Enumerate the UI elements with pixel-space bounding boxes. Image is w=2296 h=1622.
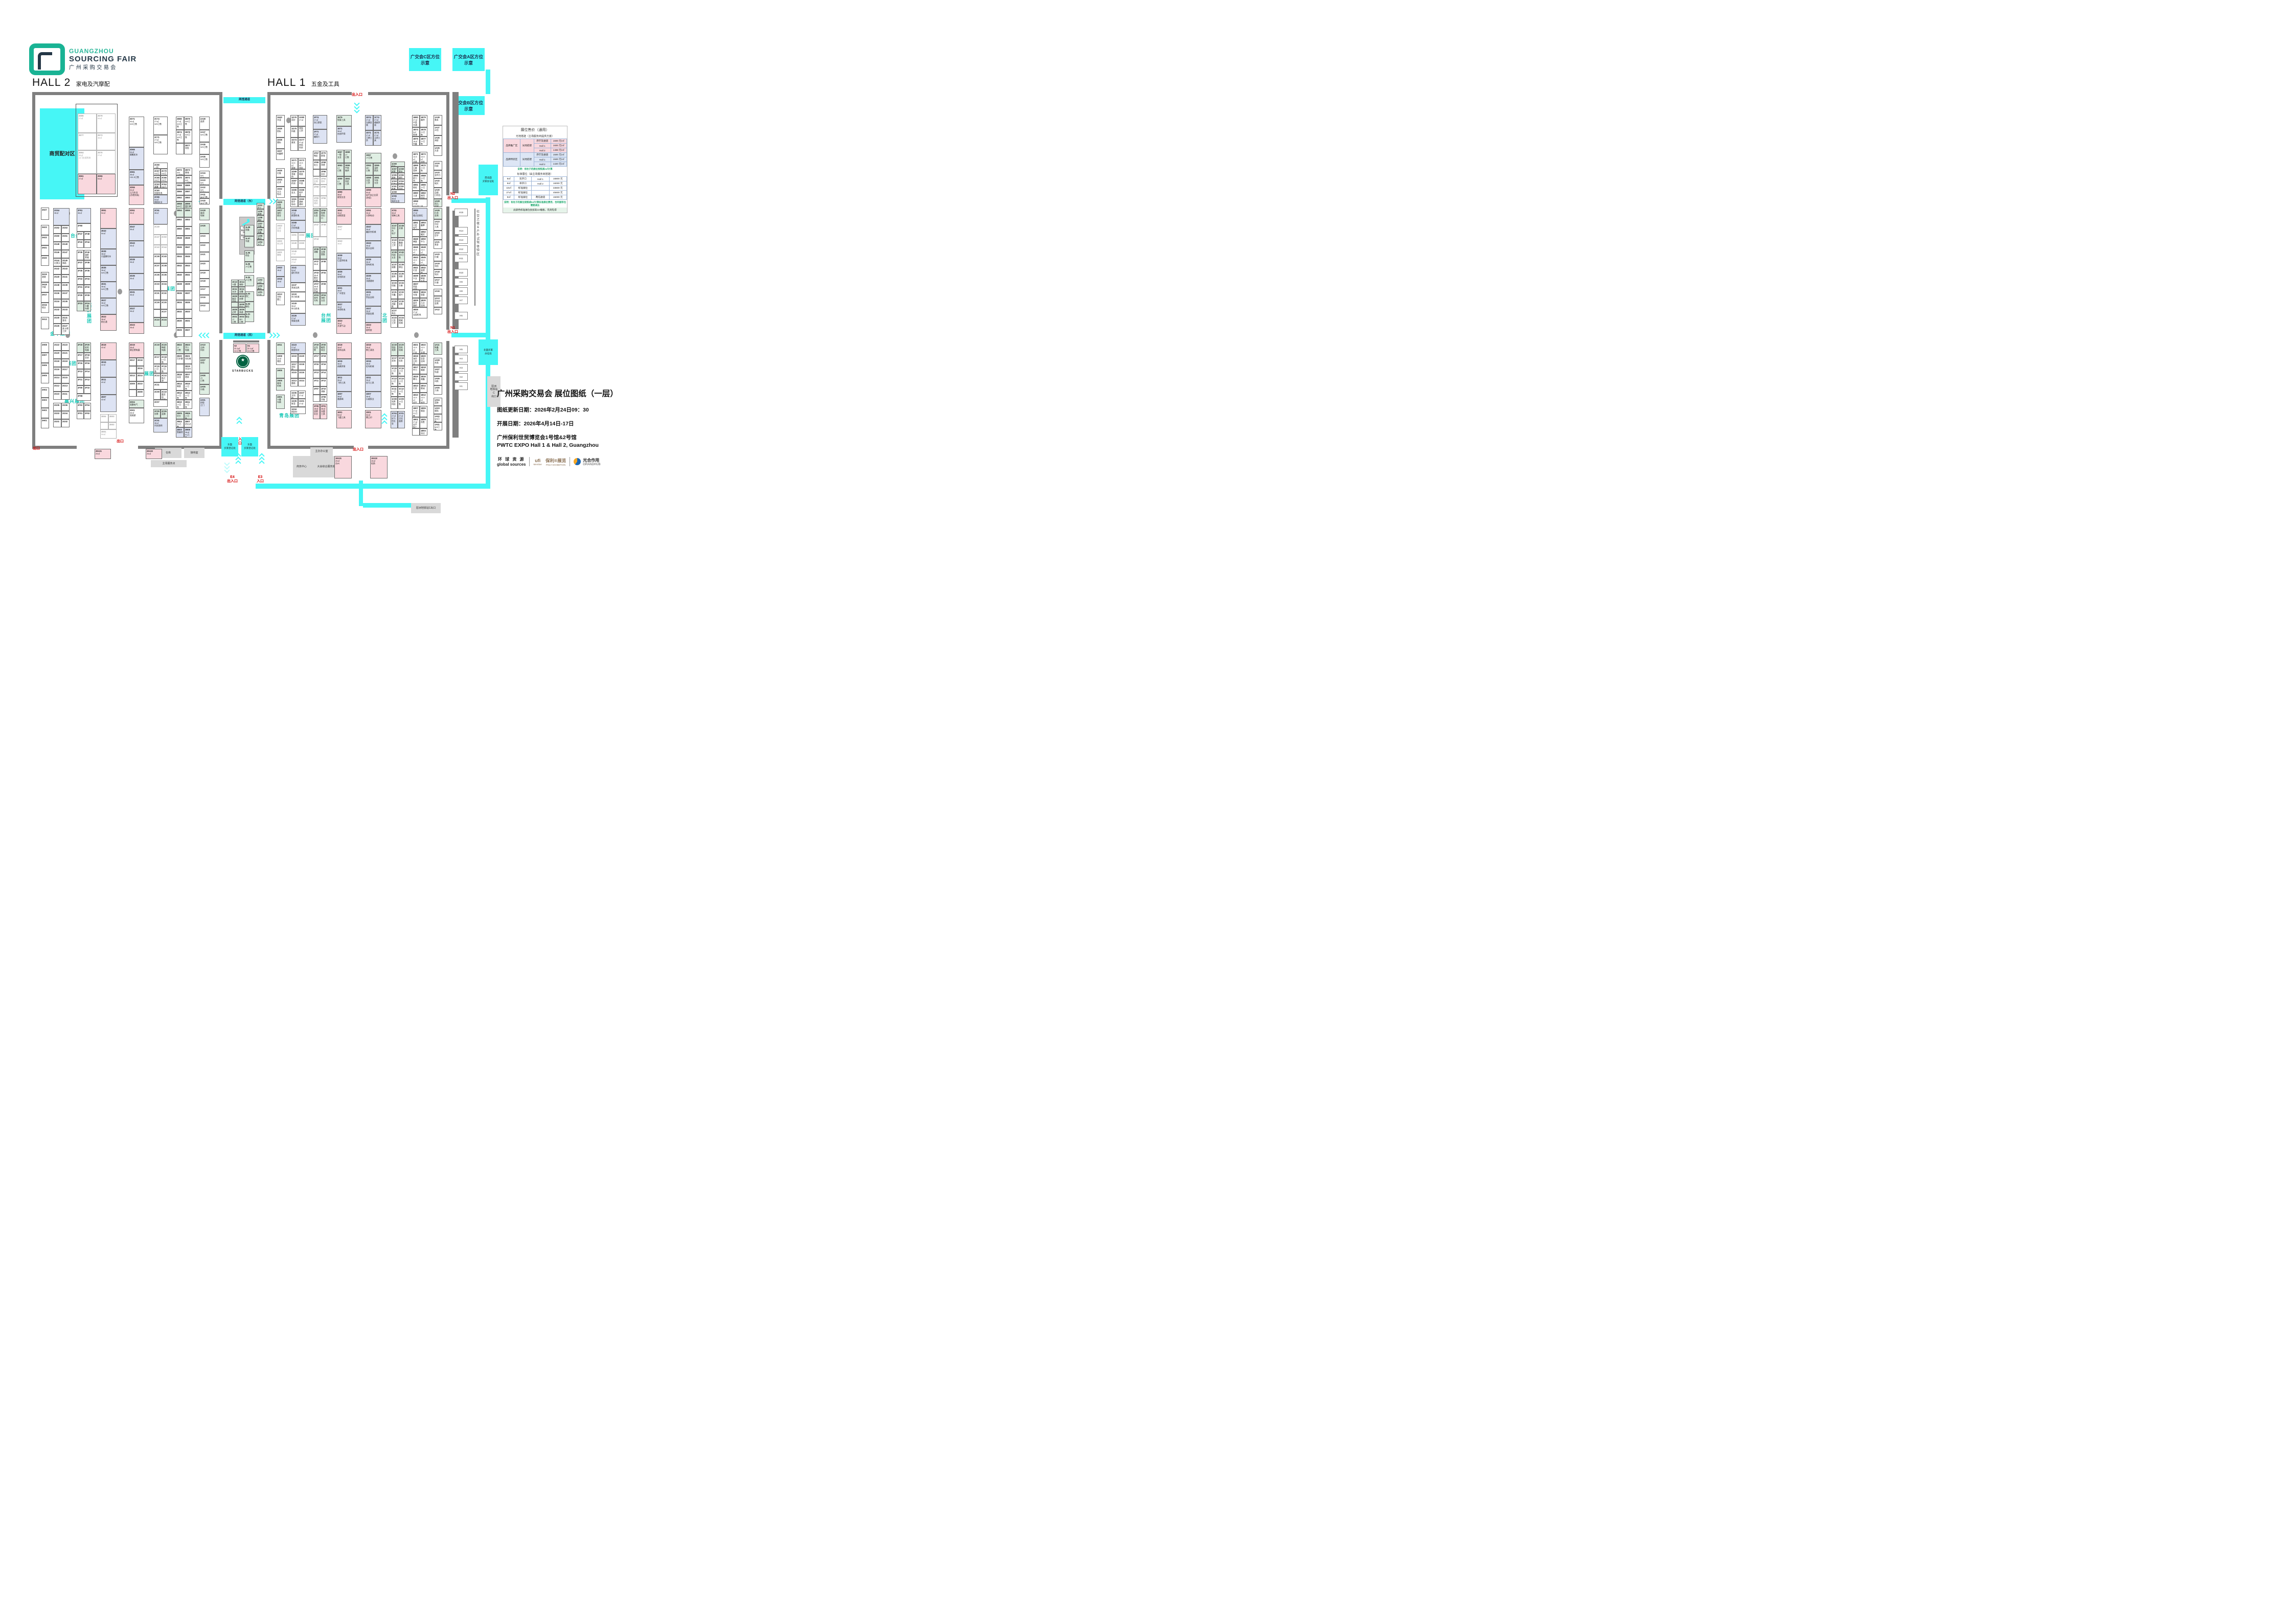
booth-2B17: 2B17 德林: [184, 372, 192, 381]
booth-2B70: 2B70: [176, 175, 184, 183]
booth-2A21: 2A21: [199, 252, 210, 261]
booth-1B26: 1B26 27㎡ 宝辰机电: [412, 307, 427, 318]
booth-2F44: 2F44: [84, 240, 91, 248]
booth-2E73: 2E73 36㎡: [97, 133, 116, 150]
booth-1F51: 1F51 意胜 五金: [313, 208, 320, 222]
booth-2A12: 2A12: [199, 303, 210, 311]
room-H13: H13: [454, 236, 468, 244]
booth-1F37: 1F37 36㎡: [313, 259, 320, 270]
wall: [32, 92, 222, 95]
booth-1B39: 1B39 兴业: [412, 273, 420, 282]
room-H2: H2: [454, 373, 468, 381]
booth-1A11: 1A11 致鑫 工具: [434, 342, 442, 355]
booth-2B37: 2B37: [184, 291, 192, 300]
booth-1A08: 1A08 合高: [434, 358, 442, 367]
booth-2C01: 2C01 36㎡ 环跃照明: [153, 418, 168, 432]
booth-1B60: 1B60 立波: [412, 191, 420, 199]
booth-2A33: 2A33 WX 已预定: [199, 178, 210, 185]
booth-1G04: 1G04 斯耐尔: [290, 407, 306, 414]
venue-cn: 广州保利世贸博览会1号馆&2号馆: [497, 433, 712, 441]
booth-2A34: 2A34 WX 已预定: [199, 171, 210, 178]
booth-2N101: 2N101 25㎡: [95, 449, 111, 459]
booth-blank: [176, 364, 184, 372]
booth-2A35: 2A35 WX已售: [199, 154, 210, 168]
booth-2B04: 2B04 PL已售: [176, 419, 184, 427]
entrance-label: 出入口: [352, 93, 362, 97]
booth-1D65: 1D65 温岭 欧凯: [373, 163, 381, 175]
booth-2G48: 2G48: [53, 242, 61, 250]
booth-1G51: 1G51: [290, 233, 298, 241]
booth-2G23: 2G23: [61, 342, 70, 351]
booth-1H35: 1H35 红磊: [276, 168, 285, 177]
booth-2A17: 2A17: [199, 287, 210, 295]
booth-2F15: 2F15: [77, 361, 84, 369]
booth-1J05: 1J05 鑫同宁: [257, 234, 264, 240]
room-H12: H12: [454, 245, 468, 253]
booth-1G50: 1G50: [298, 241, 306, 249]
booth-2G40: 2G40: [53, 275, 61, 283]
booth-2F01: 2F01: [77, 411, 84, 419]
booth-1C68: 1C68 赛夫 五金: [398, 167, 405, 173]
booth-1F33: 1F33 36㎡ 蒙花机械: [313, 270, 320, 282]
booth-1B07: 1B07 27㎡ PL已售: [412, 406, 420, 417]
booth-2A10: 2A10 吉纳 科技: [199, 342, 210, 358]
booth-2C11: 2C11: [153, 382, 168, 390]
booth-1B22: 1B22 13.5㎡ 关通: [420, 342, 427, 354]
booth-1K09: 1K09 融羿 贸易: [231, 294, 238, 302]
booth-1F44: 1F44: [313, 237, 327, 247]
booth-2G31: 2G31 爱诺: [61, 315, 70, 324]
booth-2D23: 2D23 36㎡: [129, 323, 144, 334]
booth-1A18: 1A18 铭沃: [434, 269, 442, 278]
booth-1H39: 1H39 航标: [276, 126, 285, 138]
booth-2A32: 2A32 WX 已预定: [199, 185, 210, 192]
booth-1B14: 1B14 簇诚: [420, 383, 427, 393]
booth-1J02: 1J02 鑫益: [257, 284, 264, 290]
booth-2B20: 2B20 百岁康: [176, 354, 184, 364]
booth-1B53: 1B53 鑫攀: [420, 220, 427, 230]
booth-1A17: 1A17 乐骏: [434, 278, 442, 286]
booth-1F55: 1F55 铂硕 建材: [313, 196, 320, 207]
booth-1K14: 1K14 晓盼: [238, 280, 245, 287]
booth-2E55: 2E55 54㎡: [97, 174, 116, 194]
booth-2G34: 2G34: [53, 299, 61, 307]
booth-blank: [100, 422, 108, 429]
booth-1G49: 1G49: [290, 241, 298, 249]
booth-2B71: 2B71 WX 已预定: [184, 175, 192, 183]
booth-1D15: 1D15 36㎡ 佐岛机械: [365, 359, 381, 375]
booth-1F68: 1F68 拜德: [320, 160, 327, 169]
booth-1B52: 1B52 耀灵: [420, 230, 427, 237]
direction-arrow: [274, 332, 280, 338]
booth-1C20: 1C20 凯铂 机械: [398, 342, 405, 356]
booth-1B65: 1B65 欧力特: [412, 173, 420, 182]
booth-2G03: 2G03: [53, 411, 61, 419]
booth-1C32: 1C32 斌兴: [398, 290, 405, 299]
booth-2D71: 2D71 54㎡ WX已售: [129, 117, 144, 147]
booth-2G49: 2G49: [61, 242, 70, 250]
booth-1E31: 1E31 36㎡ 广丰塑业: [336, 286, 352, 302]
entrance-label: E4 出入口: [227, 475, 238, 484]
booth-1F12: 1F12: [320, 378, 327, 386]
booth-blank: [313, 395, 320, 402]
booth-1J09: 1J09 威睿: [257, 209, 264, 215]
booth-2E43: 2E43 54㎡: [100, 229, 117, 249]
booth-2G10: 2G10: [53, 392, 61, 400]
booth-2C49: 2C49: [153, 224, 168, 235]
booth-2F28: 2F28: [84, 293, 91, 301]
booth-2B11: 2B11 LY已售: [184, 400, 192, 409]
booth-1L02: 1L02 捷信: [244, 302, 254, 312]
booth-2D39: 2D39 36㎡: [129, 257, 144, 273]
booth-2C44: 2C44: [161, 245, 168, 254]
booth-1B20: 1B20 亚奇 丝网: [420, 354, 427, 365]
booth-1D67: 1D67 JY已售: [365, 153, 381, 163]
corridor-bar: 两馆通道（西）: [223, 333, 265, 339]
booth-2A28: 2A28 盛润 电碳: [199, 208, 210, 220]
booth-1H23: 1H23 大明 泵业: [276, 223, 285, 239]
booth-2E64: 2E64 54㎡ 江门红龙科技: [78, 150, 97, 174]
booth-1L08: 1L08 雨隆: [244, 225, 254, 236]
booth-1A19: 1A19 利豹: [434, 261, 442, 269]
booth-1B48: 1B48 13.5㎡ 硕普: [420, 245, 427, 255]
booth-2C30: 2C30: [161, 300, 168, 309]
corridor: [256, 484, 490, 489]
booth-2C64: 2C64 SD已售: [161, 182, 168, 188]
corridor: [486, 70, 490, 94]
booth-2F18: 2F18 亚创: [84, 353, 91, 361]
booth-2F34: 2F34: [84, 277, 91, 285]
booth-2C37: 2C37: [153, 263, 161, 272]
booth-2H21: 2H21: [41, 245, 49, 256]
booth-1G74: 1G74 普发: [290, 138, 298, 151]
booth-2B36: 2B36: [176, 291, 184, 300]
starbucks-logo-icon: [236, 355, 249, 368]
booth-1A26: 1A26 亿泽 金属: [434, 208, 442, 219]
booth-blank: [412, 230, 420, 237]
booth-1G65: 1G65 金太: [290, 188, 298, 197]
booth-1C33: 1C33 恒能: [391, 281, 398, 290]
booth-2C69: 2C69 一特: [153, 163, 168, 169]
booth-1G71: 1G71 13.5㎡ 索能: [290, 158, 298, 169]
booth-2A22: 2A22: [199, 243, 210, 252]
booth-2F19: 2F19: [77, 342, 84, 353]
booth-2F14: 2F14: [84, 369, 91, 377]
booth-1B70: 1B70 JY已售: [420, 163, 427, 173]
booth-1E75: 1E75 锐泰工具: [336, 115, 352, 126]
booth-1F63: 1F63 金骆驼: [313, 176, 320, 185]
booth-1H32: 1H32 五元 电动: [276, 187, 285, 198]
booth-1F48: 1F48: [320, 222, 327, 237]
booth-1B71: 1B71 13.5㎡ 华盾: [412, 152, 420, 163]
booth-2C67: 2C67 SD已售: [153, 169, 161, 175]
booth-2D65: 2D65 54㎡ 摩氟机车: [129, 147, 144, 170]
booth-2C55: 2C55 54㎡ 朗翔实业: [153, 195, 168, 204]
booth-1E67: 1E67 一锤 五金: [336, 150, 344, 163]
booth-1G73: 1G73 13.5㎡ 伟科: [298, 158, 306, 169]
booth-2B40: 2B40: [176, 272, 184, 282]
booth-1C66: 1C66 捷世: [398, 173, 405, 179]
grandhub-icon: [574, 458, 581, 465]
booth-1C44: 1C44 鑫盛 五金: [398, 238, 405, 250]
booth-1G06: 1G06 艾利特: [290, 391, 298, 399]
booth-1A32: 1A32 瑞文: [434, 178, 442, 188]
booth-1H21: 1H21 腾微: [276, 250, 285, 261]
booth-1A05: 1A05 力渝: [434, 385, 442, 395]
booth-2B77: 2B77 昂思: [184, 143, 192, 154]
booth-2D55: 2D55 54㎡ 立马车业 (芬德贸易): [129, 185, 144, 205]
booth-2C24: 2C24: [161, 317, 168, 327]
booth-2G44: 2G44 红景天: [53, 258, 61, 266]
entrance-label: E3 入口: [257, 475, 264, 484]
booth-1F34: 1F34: [320, 270, 327, 282]
booth-1B46: 1B46 13.5㎡ 杰达: [412, 245, 420, 255]
booth-2G04: 2G04: [61, 411, 70, 419]
booth-1G80: 1G80 27㎡: [298, 115, 306, 126]
booth-1B45: 1B45 13.5㎡ 丰豪: [420, 255, 427, 265]
booth-1F40: 1F40 吉瑞 塑胶: [320, 247, 327, 259]
booth-blank: [231, 302, 238, 307]
booth-1A01: 1A01 MH已售: [434, 422, 442, 430]
service-area: 主场服务点: [151, 460, 187, 467]
booth-1C29: 1C29 鸿富胜: [391, 299, 398, 308]
booth-1E23: 1E23 36㎡ 开源气动: [336, 318, 352, 334]
cyan-area: 西北面 买家办证处: [479, 165, 498, 195]
booth-2C09: 2C09: [153, 390, 161, 400]
booth-1H20: 1H20 18㎡: [276, 265, 285, 277]
booth-2C16: 2C16 LY已售: [161, 364, 168, 373]
booth-2B31: 2B31: [184, 318, 192, 328]
booth-2C71: 2C71 27㎡ WX已售: [153, 135, 168, 154]
wall-opening: [219, 199, 222, 205]
floorplan-page: GUANGZHOU SOURCING FAIR 广州采购交易会 HALL 2 家…: [0, 0, 765, 541]
booth-2E79: 2E79 54㎡: [97, 113, 116, 133]
booth-2G15: 2G15: [61, 375, 70, 383]
booth-1G23: 1G23 27㎡ 格登科技: [290, 342, 306, 354]
booth-1F01: 1F01 36㎡ 长鹿工具: [320, 404, 327, 419]
booth-1D01: 1D01 54㎡ 鹰之印: [365, 410, 381, 428]
booth-2G19: 2G19: [61, 359, 70, 367]
booth-1G01: 1G01 27㎡: [298, 399, 306, 407]
booth-2C65: 2C65 SD已售: [153, 175, 161, 182]
booth-1C38: 1C38 邯佳: [398, 262, 405, 271]
entrance-label: 出入口: [353, 448, 363, 452]
booth-1C60: 1C60 绿虎 机电: [398, 184, 405, 190]
booth-1B66: 1B66 JY已售: [420, 182, 427, 191]
booth-1K12: 1K12 金雕: [238, 287, 245, 294]
booth-2B46: 2B46: [176, 245, 184, 254]
booth-2F02: 2F02: [84, 411, 91, 419]
booth-2B26: 2B26: [176, 328, 184, 337]
booth-2D18: 2D18: [137, 358, 144, 366]
booth-1G66: 1G66 地平线: [298, 188, 306, 197]
booth-2D31: 2D31 36㎡: [129, 290, 144, 306]
booth-2B38: 2B38: [176, 282, 184, 291]
booth-2F09: 2F09: [77, 385, 84, 394]
booth-2F33: 2F33: [77, 277, 84, 285]
booth-1C27: 1C27 高吉: [391, 308, 405, 315]
booth-2F40: 2F40 瑞斯 莱福: [84, 250, 91, 260]
booth-1G46: 1G46 27㎡: [290, 249, 306, 257]
booth-1G26: 1G26 27㎡ 锦泰金属: [290, 313, 306, 326]
booth-1B42: 1B42 易德筑: [420, 265, 427, 273]
booth-2C47: 2C47: [153, 235, 161, 245]
wall: [474, 209, 475, 306]
booth-2C63: 2C63 嘉赢沣: [153, 182, 161, 188]
booth-1B78: 1B78 JY已售: [420, 127, 427, 136]
booth-2F10: 2F10: [84, 385, 91, 394]
booth-1F16: 1F16: [320, 362, 327, 370]
booth-2B06: 2B06 LY已售: [184, 411, 192, 419]
booth-1F14: 1F14: [320, 370, 327, 378]
booth-1B34: 1B34 银泰: [420, 290, 427, 298]
booth-1B21: 1B21 13.5㎡ 千木: [412, 342, 420, 354]
booth-2B68: 2B68: [176, 183, 184, 189]
booth-1C55: 1C55 36㎡ 桐邦五金: [391, 194, 405, 203]
booth-1E39: 1E39 36㎡ 巨蓝特机电: [336, 253, 352, 269]
ufi-sub: Member: [533, 463, 542, 466]
booth-2G39: 2G39: [61, 283, 70, 291]
ufi-icon: ufi: [533, 458, 542, 463]
booth-1A07: 1A07 钻速: [434, 367, 442, 376]
room-H10: H10: [454, 269, 468, 277]
booth-1C12: 1C12 LY已售: [398, 386, 405, 397]
booth-2F12: 2F12: [84, 377, 91, 385]
booth-2A07: 2A07 烨购: [199, 358, 210, 373]
booth-1J01: 1J01 付龙: [257, 290, 264, 296]
booth-1H08: 1H08 12㎡ 雅凯: [276, 354, 285, 365]
booth-2E15: 2E15 42㎡: [100, 360, 117, 377]
booth-2E39: 2E39 36㎡ 闪速摩托车: [100, 249, 117, 265]
booth-2F39: 2F39: [77, 250, 84, 260]
booth-1F59: 1F59: [313, 185, 320, 196]
booth-2G26: 2G26: [53, 324, 61, 335]
booth-1F24: 1F24 海豹 五金: [320, 293, 327, 305]
booth-2B08: 2B08 36㎡ PL已售: [184, 427, 192, 438]
booth-S1: S1 32.4㎡ GC已售: [246, 344, 259, 353]
booth-2B27: 2B27: [184, 328, 192, 337]
booth-2F32: 2F32: [84, 285, 91, 293]
booth-2C05: 2C05 协厚: [153, 409, 161, 418]
booth-2C51: 2C51 36㎡: [153, 208, 168, 224]
booth-2B74: 2B74 27㎡ WX已售: [176, 130, 184, 143]
booth-2B80: 2B80 27㎡ WX已售: [176, 117, 184, 130]
booth-2E70: 2E70 27㎡: [97, 150, 116, 174]
booth-blank: [153, 309, 161, 317]
booth-1D59: 1D59 吉凯 工贸: [365, 175, 373, 188]
booth-2G22: 2G22: [53, 342, 61, 351]
booth-1K13: 1K13 卡雷: [231, 280, 238, 287]
booth-2D35: 2D35 36㎡: [129, 273, 144, 290]
booth-1E55: 1E55 36㎡ 星固五金: [336, 190, 352, 207]
cyan-area: 北面买家 办证处: [479, 339, 498, 365]
booth-1K05: 1K05 迈得安: [231, 307, 238, 314]
booth-2D08: 2D08: [137, 390, 144, 397]
booth-1C30: 1C30 金帆: [398, 299, 405, 308]
booth-2B05: 2B05 优方: [176, 411, 184, 419]
booth-1D51: 1D51 36㎡ 大弊电动: [365, 208, 381, 224]
booth-2H01: 2H01: [41, 418, 49, 428]
booth-1A38: 1A38 景禾: [434, 115, 442, 125]
booth-1D19: 1D19 36㎡ 狮王清洗: [365, 342, 381, 359]
booth-1B55: 1B55 27㎡ 隆达金刚石: [412, 208, 427, 220]
poly-logo: 保利®展览: [545, 458, 566, 464]
booth-1C40: 1C40 MH已售: [398, 250, 405, 262]
booth-2C66: 2C66 SD已售: [161, 175, 168, 182]
booth-1D35: 1D35 36㎡ 顶建建材: [365, 273, 381, 290]
booth-1C31: 1C31 华鑫: [391, 290, 398, 299]
booth-2C19: 2C19: [153, 342, 161, 355]
venue-en: PWTC EXPO Hall 1 & Hall 2, Guangzhou: [497, 442, 712, 448]
booth-2F48: 2F48: [84, 232, 91, 240]
booth-1B50: 1B50 宇力: [420, 237, 427, 245]
booth-1B80: 1B80 27㎡ 中昊交通: [412, 115, 420, 127]
booth-2C18: 2C18 LY已售: [161, 355, 168, 364]
booth-1A30: 1A30 品顺 日用品: [434, 188, 442, 199]
partner-logos: 环 球 资 源 global sources ufi Member 保利®展览 …: [497, 456, 712, 467]
booth-1A35: 1A35 天昔: [434, 146, 442, 156]
booth-1N102: 1N102 25㎡ 拓扬: [370, 456, 388, 478]
booth-2G46: 2G46: [53, 250, 61, 258]
booth-1B75: 1B75 18㎡ 利鑫机械: [412, 136, 420, 146]
booth-2E85: 2E85 27㎡: [78, 113, 97, 133]
booth-2F38: 2F38: [84, 260, 91, 268]
booth-1C65: 1C65 康普尔: [391, 173, 398, 179]
booth-1F15: 1F15: [313, 362, 320, 370]
booth-2C29: 2C29: [153, 300, 161, 309]
room-H1: H1: [454, 382, 468, 390]
booth-2B66: 2B66: [176, 189, 184, 195]
booth-1B04: 1B04 深达: [420, 428, 427, 436]
booth-2A20: 2A20: [199, 261, 210, 270]
booth-2G32: 2G32: [53, 307, 61, 315]
booth-2F23: 2F23: [77, 301, 84, 311]
booth-2B53: 2B53: [184, 217, 192, 226]
booth-2G53: 2G53: [61, 225, 70, 234]
booth-2F08: 2F08: [77, 394, 91, 401]
sheet-updated: 图纸更新日期：2026年2月24日09：30: [497, 406, 712, 414]
booth-2E02: 2E02: [108, 422, 117, 429]
booth-1F70: 1F70 欧瑞: [320, 151, 327, 160]
booth-1C09: 1C09 JY已售: [398, 397, 405, 409]
booth-1G19: 1G19: [290, 354, 298, 362]
booth-2A18: 2A18: [199, 279, 210, 287]
booth-1A34: 1A34 科致: [434, 161, 442, 170]
wall: [452, 92, 459, 193]
booth-2H19: 2H19 湘驰: [41, 272, 49, 282]
booth-1F39: 1F39 濠耀: [313, 247, 320, 259]
booth-2B13: 2B13 LY已售: [184, 391, 192, 400]
booth-1F52: 1F52 智鼎 进出口: [320, 208, 327, 222]
booth-1F10: 1F10 清爽: [320, 386, 327, 395]
booth-2G11: 2G11: [61, 392, 70, 400]
booth-1E71: 1E71 36㎡ 启迪环保: [336, 126, 352, 143]
booth-2B39: 2B39: [184, 282, 192, 291]
booth-1B68: 1B68 JY已售: [420, 173, 427, 182]
booth-1J03: 1J03 川达: [257, 278, 264, 284]
booth-2F51: 2F51 36㎡: [77, 208, 91, 223]
booth-1C08: 1C08 利界 科技: [391, 397, 398, 409]
poly-sub: POLY EXHIBITION: [545, 464, 566, 466]
booth-1F08: 1F08 华鲁特: [320, 395, 327, 402]
booth-2D10: 2D10: [137, 381, 144, 390]
booth-2E35: 2E35 36㎡ WX已售: [100, 265, 117, 282]
booth-1A36: 1A36 海智: [434, 135, 442, 146]
booth-1D11: 1D11 36㎡ 金马工具: [365, 375, 381, 392]
booth-1G33: 1G33 徐力机械: [290, 292, 306, 301]
booth-2H05: 2H05: [41, 373, 49, 383]
booth-2B23: 2B23 华人 电器: [184, 342, 192, 354]
